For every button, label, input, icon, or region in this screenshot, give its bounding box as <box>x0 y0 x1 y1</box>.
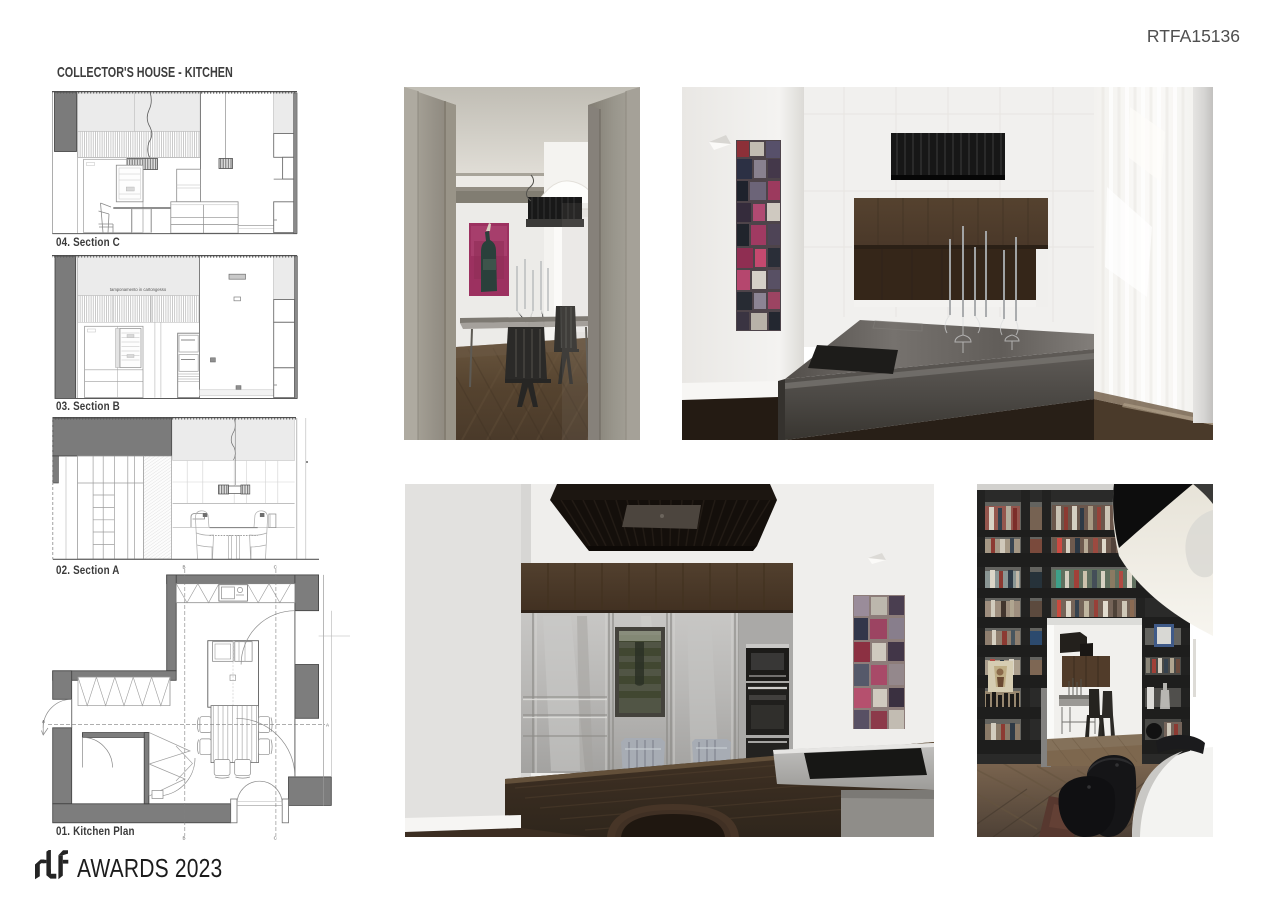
svg-text:A: A <box>326 723 329 728</box>
svg-text:B: B <box>183 836 186 841</box>
svg-text:B: B <box>183 565 186 570</box>
svg-text:tamponamento in cartongesso: tamponamento in cartongesso <box>110 287 167 292</box>
svg-text:C: C <box>274 565 278 570</box>
svg-text:A: A <box>42 719 45 724</box>
svg-text:C: C <box>274 836 278 841</box>
